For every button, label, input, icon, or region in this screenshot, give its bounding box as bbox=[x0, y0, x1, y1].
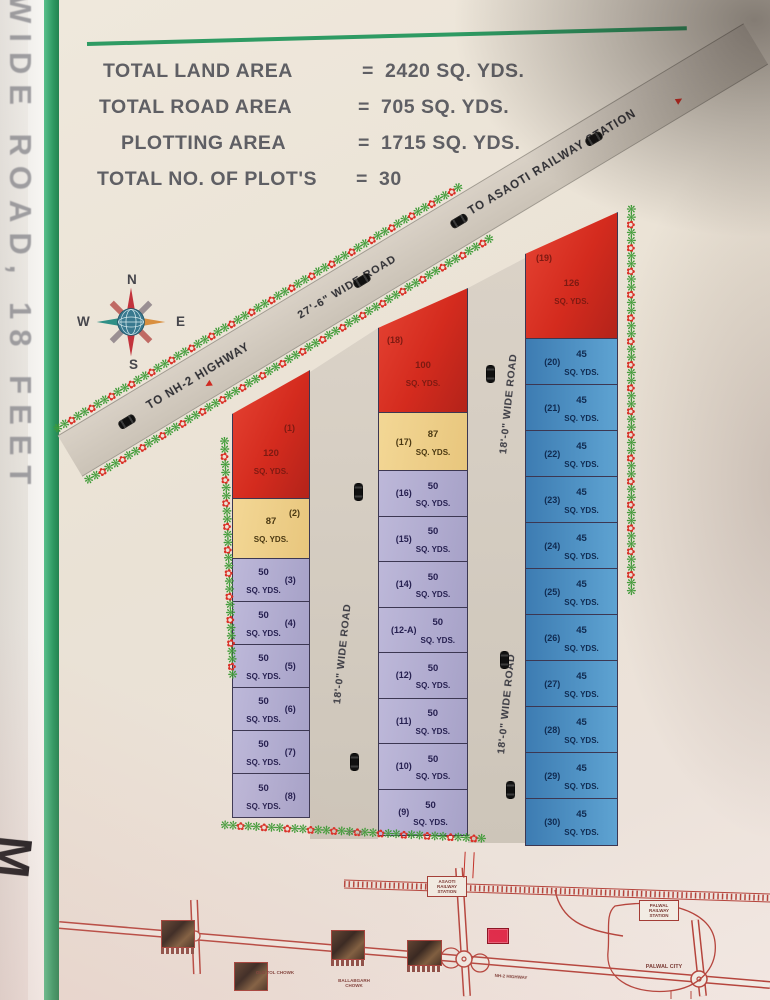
plot-cell: (11) 50 SQ. YDS. bbox=[379, 699, 467, 745]
plot-layout-poster: TOTAL LAND AREA = 2420 SQ. YDS. TOTAL RO… bbox=[59, 0, 770, 1000]
plot-cell: (2) 87 SQ. YDS. bbox=[233, 499, 309, 559]
plot-area-value: 45 bbox=[576, 717, 587, 728]
plot-area-unit: SQ. YDS. bbox=[416, 545, 451, 554]
landmark-photo-thumbnail bbox=[234, 962, 268, 991]
plot-number: (14) bbox=[396, 579, 412, 589]
plot-number: (21) bbox=[544, 403, 560, 413]
car-icon bbox=[118, 414, 137, 430]
summary-label: TOTAL NO. OF PLOT'S bbox=[97, 168, 345, 191]
plot-number: (7) bbox=[285, 747, 296, 757]
plot-cell: (27) 45 SQ. YDS. bbox=[526, 661, 617, 707]
location-route-map: ASAOTI RAILWAY STATION PALWAL RAILWAY ST… bbox=[59, 862, 770, 1000]
chowk-label-mid: OLD TOL CHOWK bbox=[255, 970, 295, 975]
plot-cell: (7) 50 SQ. YDS. bbox=[233, 731, 309, 774]
plot-area: 50 SQ. YDS. bbox=[246, 734, 281, 769]
plot-area-unit: SQ. YDS. bbox=[246, 629, 281, 638]
plot-number: (26) bbox=[544, 633, 560, 643]
handwriting-mark: M bbox=[0, 833, 44, 880]
plot-area: 45 SQ. YDS. bbox=[564, 712, 599, 747]
plot-area-value: 45 bbox=[576, 349, 587, 360]
plot-area-unit: SQ. YDS. bbox=[406, 379, 441, 388]
plot-area-unit: SQ. YDS. bbox=[246, 802, 281, 811]
plot-area-unit: SQ. YDS. bbox=[416, 590, 451, 599]
plot-number: (25) bbox=[544, 587, 560, 597]
plot-area-value: 50 bbox=[428, 481, 439, 492]
plot-cell: (29) 45 SQ. YDS. bbox=[526, 753, 617, 799]
plot-area-unit: SQ. YDS. bbox=[564, 368, 599, 377]
plot-cell: (15) 50 SQ. YDS. bbox=[379, 517, 467, 563]
plot-number: (27) bbox=[544, 679, 560, 689]
plot-area: 50 SQ. YDS. bbox=[246, 691, 281, 726]
summary-equals: = bbox=[351, 60, 385, 83]
plot-cell: (21) 45 SQ. YDS. bbox=[526, 385, 617, 431]
plot-number: (29) bbox=[544, 771, 560, 781]
plot-cell: (5) 50 SQ. YDS. bbox=[233, 645, 309, 688]
plot-area-value: 87 bbox=[428, 429, 439, 440]
compass-west-label: W bbox=[77, 314, 90, 329]
thumbnail-caption bbox=[407, 966, 442, 972]
plot-area-unit: SQ. YDS. bbox=[254, 467, 289, 476]
plot-area-unit: SQ. YDS. bbox=[554, 297, 589, 306]
plot-area: 50 SQ. YDS. bbox=[416, 476, 451, 511]
poster-top-border-line bbox=[87, 26, 687, 46]
plot-area: 50 SQ. YDS. bbox=[420, 612, 455, 647]
vertical-road-1: 18'-0" WIDE ROAD bbox=[310, 328, 378, 839]
plot-area-unit: SQ. YDS. bbox=[564, 552, 599, 561]
plot-number: (2) bbox=[289, 508, 300, 518]
car-icon bbox=[501, 652, 509, 669]
plot-number: (22) bbox=[544, 449, 560, 459]
plot-area-value: 87 bbox=[266, 516, 277, 527]
plot-area: 50 SQ. YDS. bbox=[246, 778, 281, 813]
plot-number: (17) bbox=[396, 437, 412, 447]
plot-cell: (25) 45 SQ. YDS. bbox=[526, 569, 617, 615]
summary-label: PLOTTING AREA bbox=[121, 132, 347, 155]
plot-area: 50 SQ. YDS. bbox=[246, 648, 281, 683]
plot-number: (15) bbox=[396, 534, 412, 544]
plot-cell: (12-A) 50 SQ. YDS. bbox=[379, 608, 467, 654]
plot-area-value: 100 bbox=[415, 360, 431, 371]
road-2-label-bottom: 18'-0" WIDE ROAD bbox=[495, 653, 517, 754]
car-icon bbox=[355, 484, 363, 501]
plot-number: (24) bbox=[544, 541, 560, 551]
plot-area-unit: SQ. YDS. bbox=[246, 672, 281, 681]
summary-value: 705 SQ. YDS. bbox=[381, 96, 567, 119]
plot-area-value: 50 bbox=[428, 663, 439, 674]
plot-area-value: 50 bbox=[428, 754, 439, 765]
summary-label: TOTAL ROAD AREA bbox=[99, 96, 347, 119]
plot-area-unit: SQ. YDS. bbox=[564, 460, 599, 469]
compass-south-label: S bbox=[129, 357, 138, 372]
boundary-garland-right: ❋❋✿❋❋✿❋❋✿❋❋✿❋❋✿❋❋✿❋❋✿❋❋✿❋❋✿❋❋✿❋❋✿❋❋✿❋❋✿❋… bbox=[624, 205, 638, 855]
area-summary: TOTAL LAND AREA = 2420 SQ. YDS. TOTAL RO… bbox=[97, 60, 567, 204]
plot-area: 45 SQ. YDS. bbox=[564, 574, 599, 609]
plot-number: (9) bbox=[398, 807, 409, 817]
plot-area: 45 SQ. YDS. bbox=[564, 390, 599, 425]
station-label-left: ASAOTI RAILWAY STATION bbox=[427, 876, 467, 897]
plot-area-value: 120 bbox=[263, 448, 279, 459]
plot-number: (3) bbox=[285, 575, 296, 585]
plot-number: (6) bbox=[285, 704, 296, 714]
plot-area: 45 SQ. YDS. bbox=[564, 344, 599, 379]
plot-number: (19) bbox=[536, 253, 552, 263]
landmark-photo-thumbnail bbox=[161, 920, 195, 948]
plot-area-unit: SQ. YDS. bbox=[564, 506, 599, 515]
plot-cell: (16) 50 SQ. YDS. bbox=[379, 471, 467, 517]
plot-number: (5) bbox=[285, 661, 296, 671]
plot-area-value: 50 bbox=[258, 567, 269, 578]
plot-column-left: (1) 120 SQ. YDS. (2) 87 SQ. YDS. (3) 50 … bbox=[232, 370, 310, 818]
plot-number: (4) bbox=[285, 618, 296, 628]
plant-icon: ❋ bbox=[476, 831, 487, 846]
plot-cell: (28) 45 SQ. YDS. bbox=[526, 707, 617, 753]
plot-number: (8) bbox=[285, 791, 296, 801]
plot-area-value: 45 bbox=[576, 487, 587, 498]
side-vertical-text: WIDE ROAD, 18 FEET bbox=[2, 0, 38, 754]
plot-area-unit: SQ. YDS. bbox=[415, 727, 450, 736]
plot-number: (16) bbox=[396, 488, 412, 498]
plot-area-value: 50 bbox=[258, 610, 269, 621]
site-connector-lines bbox=[463, 852, 474, 878]
landmark-photo-thumbnail bbox=[407, 940, 442, 966]
summary-row: TOTAL NO. OF PLOT'S = 30 bbox=[97, 168, 567, 204]
plot-area: 87 SQ. YDS. bbox=[416, 424, 451, 459]
plot-area-value: 50 bbox=[258, 696, 269, 707]
plot-area: 50 SQ. YDS. bbox=[416, 521, 451, 556]
plot-area-unit: SQ. YDS. bbox=[420, 636, 455, 645]
plot-area-value: 50 bbox=[258, 783, 269, 794]
summary-value: 1715 SQ. YDS. bbox=[381, 132, 567, 155]
plot-cell: (10) 50 SQ. YDS. bbox=[379, 744, 467, 790]
compass-rose: N S W E bbox=[85, 276, 177, 368]
summary-equals: = bbox=[347, 132, 381, 155]
summary-equals: = bbox=[345, 168, 379, 191]
plot-area: 50 SQ. YDS. bbox=[413, 795, 448, 830]
plot-area: 50 SQ. YDS. bbox=[416, 567, 451, 602]
plot-area: 50 SQ. YDS. bbox=[416, 749, 451, 784]
plot-area-unit: SQ. YDS. bbox=[416, 448, 451, 457]
plot-area-value: 45 bbox=[576, 579, 587, 590]
plot-area-unit: SQ. YDS. bbox=[246, 758, 281, 767]
plot-area: 45 SQ. YDS. bbox=[564, 620, 599, 655]
site-location-marker bbox=[487, 928, 509, 944]
compass-east-label: E bbox=[176, 314, 185, 329]
plot-number: (10) bbox=[396, 761, 412, 771]
plot-area-unit: SQ. YDS. bbox=[246, 715, 281, 724]
plot-area-unit: SQ. YDS. bbox=[246, 586, 281, 595]
plot-column-right: (19) 126 SQ. YDS. (20) 45 SQ. YDS. (21) … bbox=[525, 212, 618, 846]
plot-area: 45 SQ. YDS. bbox=[564, 758, 599, 793]
plot-number: (20) bbox=[544, 357, 560, 367]
plot-area-unit: SQ. YDS. bbox=[416, 681, 451, 690]
summary-row: PLOTTING AREA = 1715 SQ. YDS. bbox=[97, 132, 567, 168]
plot-area-unit: SQ. YDS. bbox=[564, 414, 599, 423]
thumbnail-caption bbox=[161, 948, 195, 954]
plot-area: 45 SQ. YDS. bbox=[564, 436, 599, 471]
plot-number: (18) bbox=[387, 335, 403, 345]
plot-area-unit: SQ. YDS. bbox=[564, 598, 599, 607]
landmark-photo-thumbnail bbox=[331, 930, 365, 960]
plot-area-value: 50 bbox=[427, 708, 438, 719]
plot-area-unit: SQ. YDS. bbox=[254, 535, 289, 544]
plot-number: (28) bbox=[544, 725, 560, 735]
plot-area-value: 50 bbox=[258, 653, 269, 664]
plot-cell: (24) 45 SQ. YDS. bbox=[526, 523, 617, 569]
car-icon bbox=[507, 782, 515, 799]
plot-number: (12) bbox=[396, 670, 412, 680]
plot-map-photo: WIDE ROAD, 18 FEET M TOTAL LAND AREA = 2… bbox=[0, 0, 770, 1000]
plot-area-value: 50 bbox=[428, 572, 439, 583]
plot-area: 50 SQ. YDS. bbox=[246, 562, 281, 597]
plot-area: 45 SQ. YDS. bbox=[564, 804, 599, 839]
summary-value: 2420 SQ. YDS. bbox=[385, 60, 567, 83]
summary-value: 30 bbox=[379, 168, 567, 191]
plot-cell: (6) 50 SQ. YDS. bbox=[233, 688, 309, 731]
plot-area: 50 SQ. YDS. bbox=[415, 703, 450, 738]
plot-column-middle: (18) 100 SQ. YDS. (17) 87 SQ. YDS. (16) … bbox=[378, 288, 468, 836]
plot-cell: (23) 45 SQ. YDS. bbox=[526, 477, 617, 523]
plot-number: (30) bbox=[544, 817, 560, 827]
plot-area-value: 50 bbox=[428, 526, 439, 537]
plot-area: 45 SQ. YDS. bbox=[564, 528, 599, 563]
plot-area-value: 45 bbox=[576, 763, 587, 774]
chowk-label-right: BALLABGARH CHOWK bbox=[331, 978, 377, 988]
diagonal-road-name: 27'-6" WIDE ROAD bbox=[296, 253, 399, 322]
summary-row: TOTAL ROAD AREA = 705 SQ. YDS. bbox=[97, 96, 567, 132]
car-icon bbox=[351, 754, 359, 771]
plot-area-unit: SQ. YDS. bbox=[564, 782, 599, 791]
thumbnail-caption bbox=[331, 960, 365, 966]
plot-cell: (3) 50 SQ. YDS. bbox=[233, 559, 309, 602]
plant-icon: ❋ bbox=[225, 669, 239, 680]
vertical-road-2: 18'-0" WIDE ROAD 18'-0" WIDE ROAD bbox=[468, 258, 525, 843]
plot-number: (11) bbox=[396, 716, 412, 726]
city-label: PALWAL CITY bbox=[639, 964, 689, 970]
plot-number: (12-A) bbox=[391, 625, 417, 635]
plot-area-value: 45 bbox=[576, 395, 587, 406]
compass-star-icon bbox=[95, 286, 167, 358]
road-1-label: 18'-0" WIDE ROAD bbox=[331, 603, 353, 704]
plot-cell: (4) 50 SQ. YDS. bbox=[233, 602, 309, 645]
plot-area-value: 126 bbox=[564, 278, 580, 289]
plot-area-value: 50 bbox=[425, 800, 436, 811]
plot-cell: (26) 45 SQ. YDS. bbox=[526, 615, 617, 661]
plot-cell: (17) 87 SQ. YDS. bbox=[379, 413, 467, 471]
plot-cell: (12) 50 SQ. YDS. bbox=[379, 653, 467, 699]
plot-area-unit: SQ. YDS. bbox=[564, 644, 599, 653]
plot-cell: (19) 126 SQ. YDS. bbox=[526, 213, 617, 339]
plot-area: 45 SQ. YDS. bbox=[564, 482, 599, 517]
arrow-right-icon: ► bbox=[672, 92, 688, 108]
plot-cell: (22) 45 SQ. YDS. bbox=[526, 431, 617, 477]
poster-green-border bbox=[44, 0, 59, 1000]
plot-area: 100 SQ. YDS. bbox=[406, 355, 441, 390]
plot-area-unit: SQ. YDS. bbox=[416, 499, 451, 508]
plot-area: 87 SQ. YDS. bbox=[254, 511, 289, 546]
summary-equals: = bbox=[347, 96, 381, 119]
summary-row: TOTAL LAND AREA = 2420 SQ. YDS. bbox=[97, 60, 567, 96]
plot-area-unit: SQ. YDS. bbox=[564, 690, 599, 699]
plot-number: (1) bbox=[284, 423, 295, 433]
station-label-right: PALWAL RAILWAY STATION bbox=[639, 900, 679, 921]
plot-area: 50 SQ. YDS. bbox=[246, 605, 281, 640]
bottom-dimension-label: 27'-8" bbox=[347, 830, 365, 838]
plot-area: 45 SQ. YDS. bbox=[564, 666, 599, 701]
plot-area: 120 SQ. YDS. bbox=[254, 443, 289, 478]
plot-cell: (18) 100 SQ. YDS. bbox=[379, 289, 467, 413]
plot-area-unit: SQ. YDS. bbox=[564, 736, 599, 745]
plot-area-value: 45 bbox=[576, 809, 587, 820]
plot-area-unit: SQ. YDS. bbox=[413, 818, 448, 827]
car-icon bbox=[487, 366, 495, 383]
road-2-label-top: 18'-0" WIDE ROAD bbox=[497, 353, 519, 454]
plant-icon: ❋ bbox=[624, 586, 638, 596]
plot-area-unit: SQ. YDS. bbox=[416, 772, 451, 781]
car-icon bbox=[450, 213, 469, 229]
summary-label: TOTAL LAND AREA bbox=[103, 60, 351, 83]
plot-cell: (20) 45 SQ. YDS. bbox=[526, 339, 617, 385]
compass-north-label: N bbox=[127, 272, 137, 287]
plot-area-value: 45 bbox=[576, 533, 587, 544]
plot-cell: (8) 50 SQ. YDS. bbox=[233, 774, 309, 817]
plot-area-value: 50 bbox=[432, 617, 443, 628]
plot-area-value: 45 bbox=[576, 671, 587, 682]
plot-area-value: 50 bbox=[258, 739, 269, 750]
plot-area: 126 SQ. YDS. bbox=[554, 273, 589, 308]
plot-area-value: 45 bbox=[576, 441, 587, 452]
plot-area: 50 SQ. YDS. bbox=[416, 658, 451, 693]
plot-area-value: 45 bbox=[576, 625, 587, 636]
plot-number: (23) bbox=[544, 495, 560, 505]
plot-cell: (14) 50 SQ. YDS. bbox=[379, 562, 467, 608]
